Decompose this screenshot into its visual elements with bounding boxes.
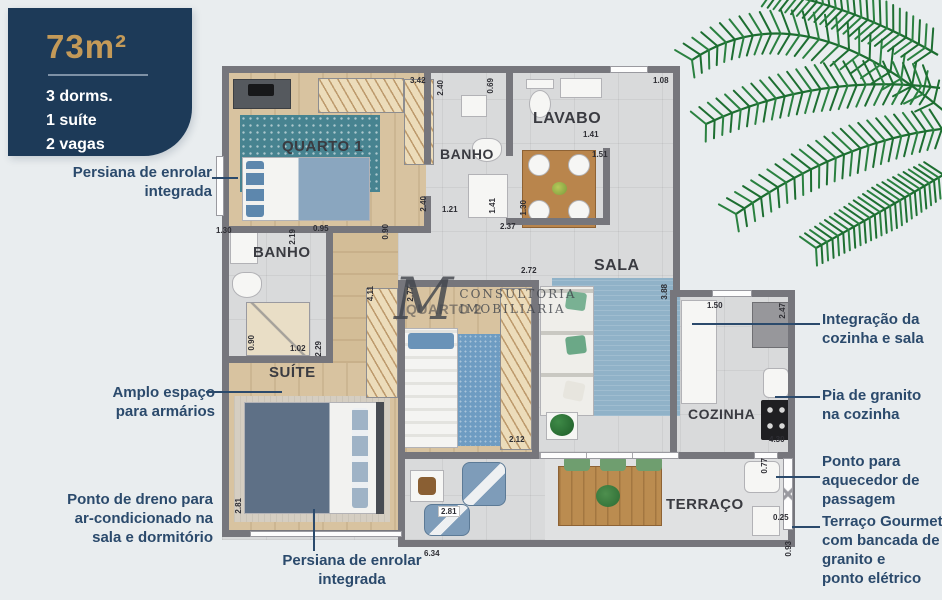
plant-icon xyxy=(550,414,574,436)
dimension-label: 0.90 xyxy=(247,335,256,351)
wall xyxy=(405,452,539,459)
dimension-label: 2.40 xyxy=(419,196,428,212)
dimension-label: 0.95 xyxy=(313,224,329,233)
sala-terraco-glass-door xyxy=(539,452,679,459)
cozinha-counter xyxy=(681,300,717,404)
wall xyxy=(398,540,795,547)
cozinha-sink xyxy=(763,368,789,398)
wall xyxy=(222,356,333,363)
quarto1-laptop xyxy=(248,84,274,96)
dimension-label: 0.93 xyxy=(784,541,793,557)
watermark-monogram: M xyxy=(394,274,453,324)
area-label: 73m² xyxy=(46,28,192,66)
spec-vagas: 2 vagas xyxy=(46,133,192,157)
annotation-amplo-espaco: Amplo espaço para armários xyxy=(112,383,215,421)
wall xyxy=(398,396,405,537)
annotation-pia-granito: Pia de granito na cozinha xyxy=(822,386,921,424)
leader-line xyxy=(775,396,820,398)
dimension-label: 1.41 xyxy=(583,130,599,139)
quarto1-pillows xyxy=(246,161,264,217)
wall xyxy=(424,72,431,164)
leader-line xyxy=(792,526,820,528)
dimension-label: 1.50 xyxy=(707,301,723,310)
suite-pillows xyxy=(352,408,368,508)
watermark-logo: M CONSULTORIA IMOBILIARIA xyxy=(394,274,577,324)
wall xyxy=(673,66,680,297)
room-label-suite: SUÍTE xyxy=(269,364,316,381)
banho-suite-toilet xyxy=(232,272,262,298)
leader-line xyxy=(212,177,238,179)
sala-sofa-pillow xyxy=(562,380,585,402)
annotation-ponto-dreno: Ponto de dreno para ar-condicionado na s… xyxy=(67,490,213,547)
room-label-cozinha: COZINHA xyxy=(688,406,755,422)
quarto2-pillow xyxy=(408,333,454,349)
entry-door-opening xyxy=(610,66,648,73)
dimension-label: 1.51 xyxy=(592,150,608,159)
dimension-label: 0.69 xyxy=(486,78,495,94)
wall xyxy=(506,72,513,156)
floorplan-page: M CONSULTORIA IMOBILIARIA Persiana de en… xyxy=(0,0,942,600)
quarto1-wardrobe xyxy=(318,78,404,113)
leader-line xyxy=(313,509,315,551)
dimension-label: 2.29 xyxy=(314,341,323,357)
dimension-label: 2.37 xyxy=(500,222,516,231)
cozinha-pass-opening xyxy=(712,290,752,297)
spec-suite: 1 suíte xyxy=(46,109,192,133)
terraco-plant xyxy=(596,485,620,507)
dimension-label: 1.30 xyxy=(519,200,528,216)
leader-line xyxy=(206,391,282,393)
quarto2-rug xyxy=(458,334,500,446)
room-label-sala: SALA xyxy=(594,257,640,275)
room-label-lavabo: LAVABO xyxy=(533,110,601,128)
dimension-label: 0.90 xyxy=(381,224,390,240)
room-label-banho-social: BANHO xyxy=(440,146,494,162)
dimension-label: 1.41 xyxy=(488,198,497,214)
cozinha-stove xyxy=(761,400,791,440)
room-label-banho-suite: BANHO xyxy=(253,244,311,261)
wall xyxy=(326,233,333,363)
wall xyxy=(506,218,610,225)
room-label-terraco: TERRAÇO xyxy=(666,496,744,513)
side-table-decor xyxy=(418,477,436,495)
dimension-label: 0.25 xyxy=(773,513,789,522)
dimension-label: 2.12 xyxy=(509,435,525,444)
spec-dorms: 3 dorms. xyxy=(46,85,192,109)
banho-social-sink xyxy=(461,95,487,117)
leader-line xyxy=(692,323,820,325)
dimension-label: 2.81 xyxy=(438,506,460,517)
suite-window-persiana xyxy=(250,531,402,537)
room-label-quarto1: QUARTO 1 xyxy=(282,138,363,155)
annotation-terraco-gourmet: Terraço Gourmet com bancada de granito e… xyxy=(822,512,942,588)
dimension-label: 1.30 xyxy=(216,226,232,235)
leader-line xyxy=(776,476,820,478)
sala-sofa-pillow xyxy=(565,335,587,355)
annotation-persiana-bottom: Persiana de enrolar integrada xyxy=(250,551,454,589)
annotation-aquecedor: Ponto para aquecedor de passagem xyxy=(822,452,920,509)
quarto1-window xyxy=(216,156,224,216)
dimension-label: 1.21 xyxy=(442,205,458,214)
lavabo-sink xyxy=(560,78,602,98)
dimension-label: 1.08 xyxy=(653,76,669,85)
suite-headboard xyxy=(376,402,384,514)
wall xyxy=(222,66,229,537)
dimension-label: 0.77 xyxy=(760,458,769,474)
dimension-label: 2.19 xyxy=(288,229,297,245)
watermark-text: CONSULTORIA IMOBILIARIA xyxy=(459,287,576,317)
dimension-label: 1.02 xyxy=(290,344,306,353)
dimension-label: 2.47 xyxy=(778,303,787,319)
dining-chair xyxy=(528,154,550,176)
armchair xyxy=(462,462,506,506)
dimension-label: 4.11 xyxy=(366,286,375,301)
dimension-label: 4.30 xyxy=(769,435,785,444)
card-divider xyxy=(48,74,148,76)
dimension-label: 2.40 xyxy=(436,80,445,96)
dimension-label: 3.88 xyxy=(660,284,669,300)
lavabo-toilet-tank xyxy=(526,79,554,89)
dimension-label: 2.81 xyxy=(234,498,243,514)
annotation-integracao: Integração da cozinha e sala xyxy=(822,310,924,348)
dining-centerpiece xyxy=(552,182,567,195)
annotation-persiana-top: Persiana de enrolar integrada xyxy=(73,163,212,201)
wall xyxy=(670,290,677,455)
info-card: 73m² 3 dorms. 1 suíte 2 vagas xyxy=(8,8,192,156)
wall xyxy=(603,148,610,225)
dining-chair xyxy=(568,154,590,176)
dimension-label: 3.42 xyxy=(410,76,426,85)
